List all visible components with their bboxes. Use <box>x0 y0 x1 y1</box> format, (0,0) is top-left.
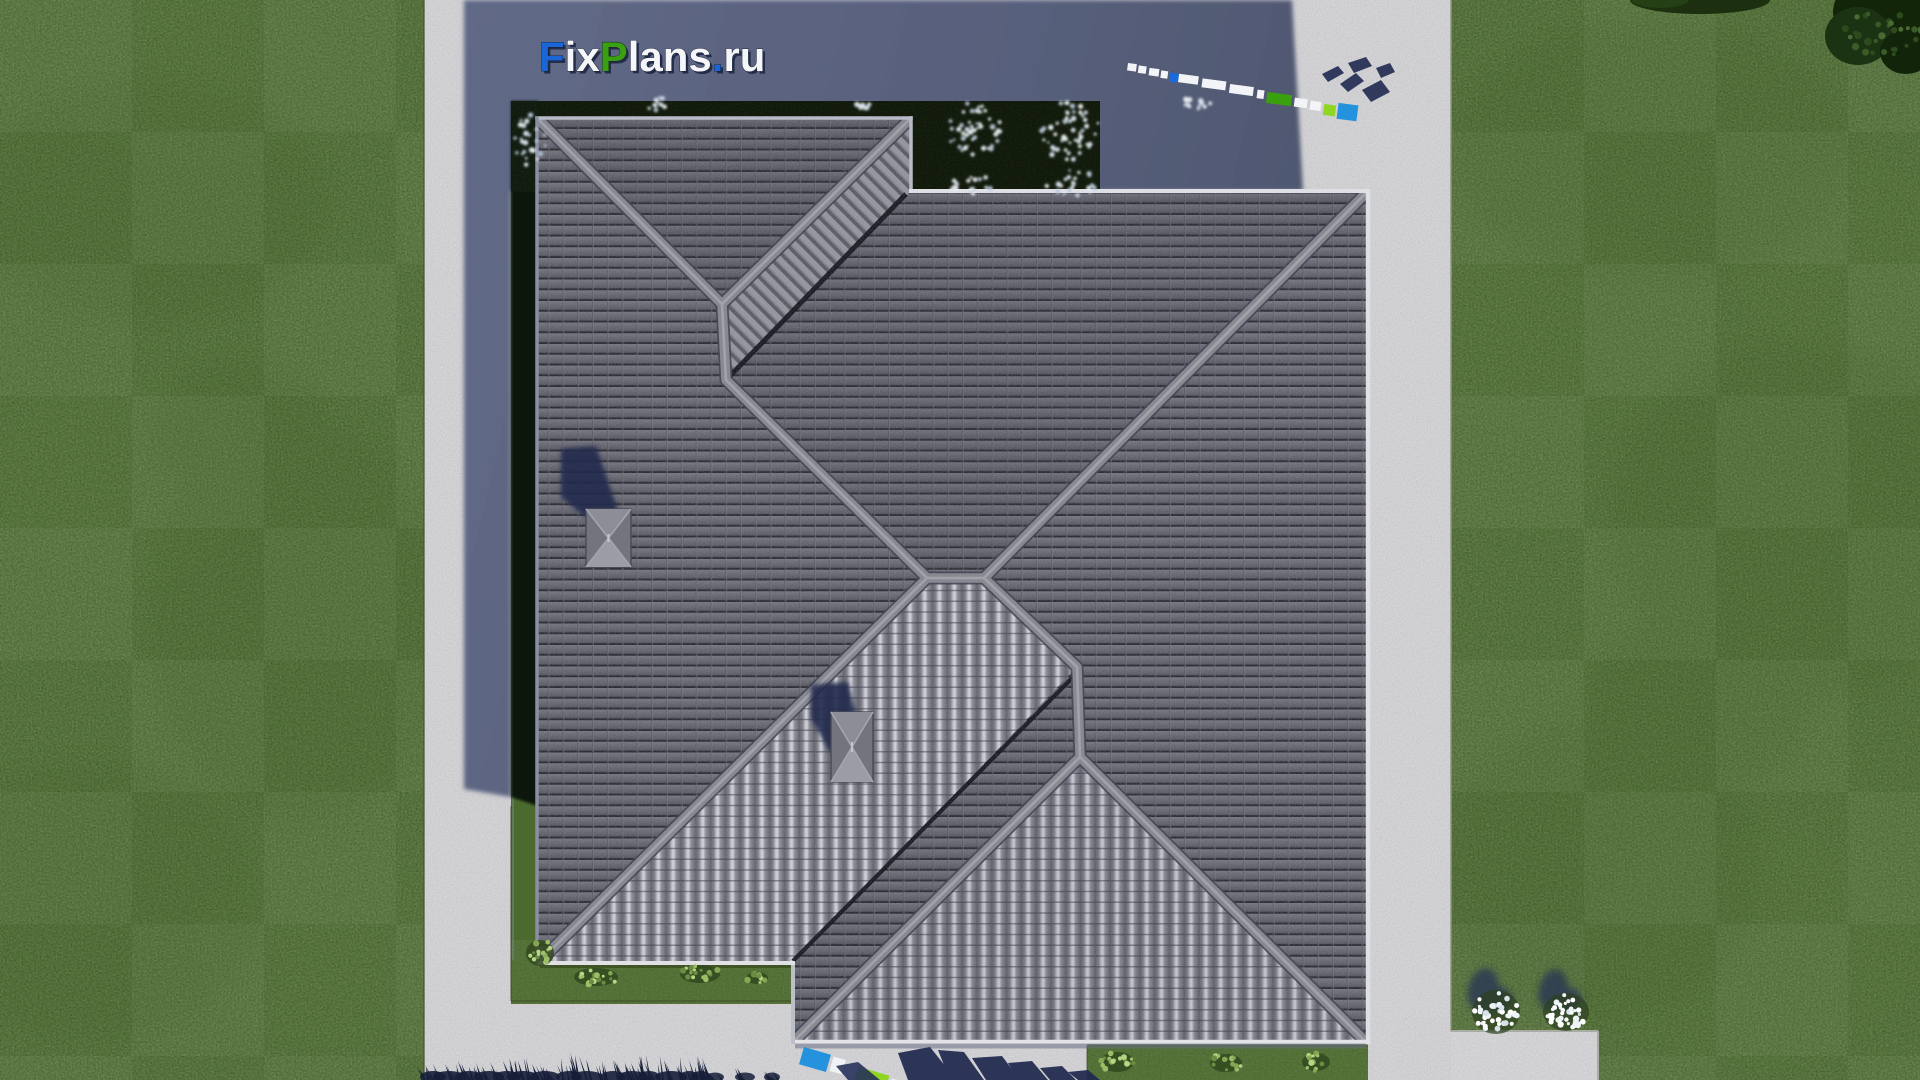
svg-text:FixPlans.ru: FixPlans.ru <box>539 33 765 80</box>
